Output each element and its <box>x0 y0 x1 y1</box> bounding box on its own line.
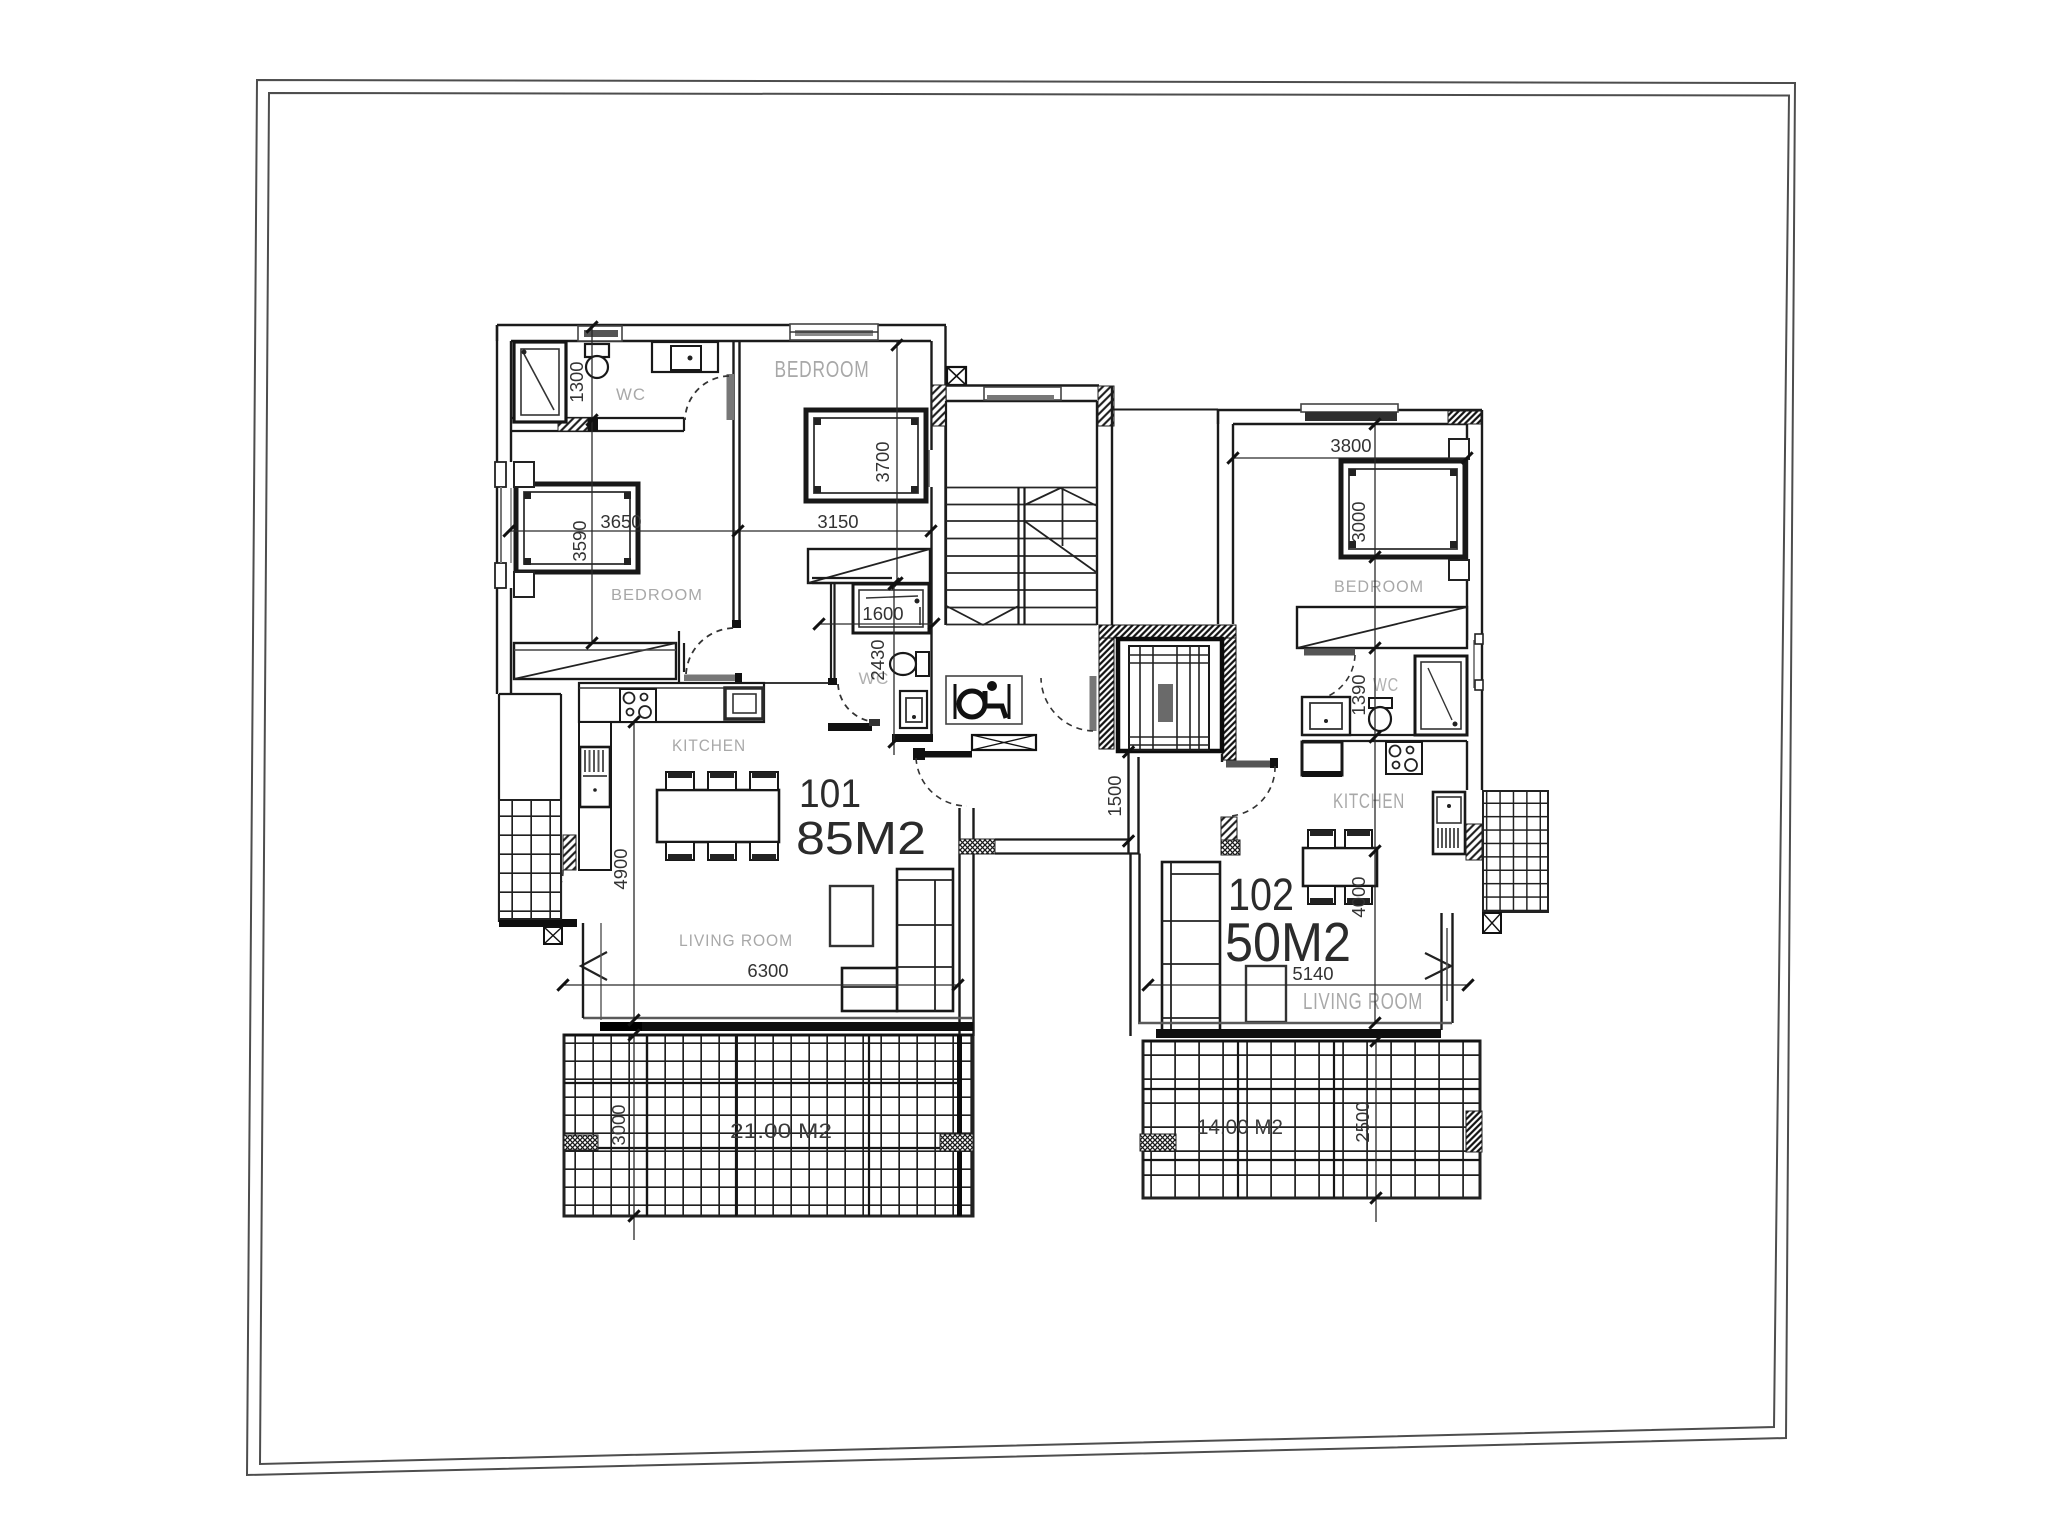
svg-text:1300: 1300 <box>566 361 587 402</box>
svg-text:85M2: 85M2 <box>796 812 926 864</box>
svg-text:KITCHEN: KITCHEN <box>672 736 746 755</box>
svg-text:1390: 1390 <box>1348 674 1369 715</box>
svg-text:LIVING ROOM: LIVING ROOM <box>679 931 793 950</box>
svg-text:4900: 4900 <box>610 848 631 889</box>
svg-text:3700: 3700 <box>872 441 893 482</box>
svg-text:101: 101 <box>799 772 861 816</box>
svg-text:BEDROOM: BEDROOM <box>611 587 703 604</box>
svg-text:14.00 M2: 14.00 M2 <box>1197 1116 1283 1139</box>
svg-text:50M2: 50M2 <box>1225 911 1351 973</box>
svg-text:2430: 2430 <box>867 639 888 680</box>
svg-text:3150: 3150 <box>817 511 858 532</box>
svg-text:BEDROOM: BEDROOM <box>775 356 870 382</box>
svg-text:3590: 3590 <box>569 520 590 561</box>
svg-text:3800: 3800 <box>1330 435 1371 456</box>
svg-text:3650: 3650 <box>600 511 641 532</box>
svg-text:WC: WC <box>616 385 646 404</box>
svg-text:4000: 4000 <box>1348 876 1369 917</box>
svg-text:3000: 3000 <box>608 1104 629 1145</box>
svg-text:LIVING ROOM: LIVING ROOM <box>1303 988 1423 1014</box>
svg-text:6300: 6300 <box>747 960 788 981</box>
svg-text:KITCHEN: KITCHEN <box>1333 790 1405 813</box>
svg-text:WC: WC <box>1373 675 1399 695</box>
svg-text:1600: 1600 <box>862 603 903 624</box>
svg-text:21.00 M2: 21.00 M2 <box>730 1120 832 1143</box>
svg-text:1500: 1500 <box>1104 775 1125 816</box>
svg-text:2500: 2500 <box>1352 1101 1373 1142</box>
svg-text:BEDROOM: BEDROOM <box>1334 577 1424 596</box>
svg-text:3000: 3000 <box>1348 501 1369 542</box>
